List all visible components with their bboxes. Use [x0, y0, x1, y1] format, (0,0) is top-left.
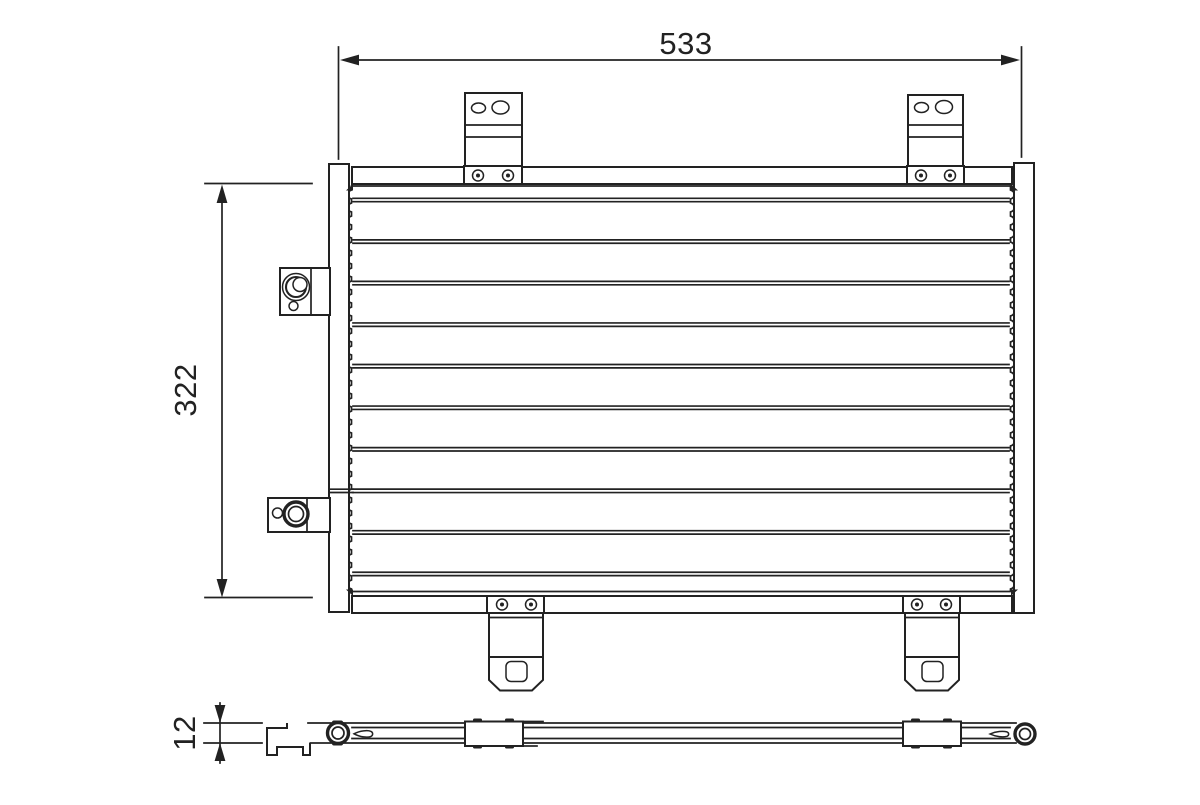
right-end-plate	[1014, 163, 1034, 613]
port-icon	[284, 502, 308, 526]
arrow-right-icon	[1001, 55, 1020, 66]
bracket-body	[905, 613, 959, 657]
pipe-tip-icon	[990, 731, 1009, 736]
top-right-bracket	[907, 95, 964, 184]
screw-center	[944, 603, 948, 607]
slot-hole-icon	[472, 103, 486, 113]
screw-center	[529, 603, 533, 607]
height-dimension: 322	[168, 184, 312, 598]
bolt-hole-icon	[289, 302, 298, 311]
slot-hole-icon	[936, 101, 953, 114]
slot-hole-icon	[915, 103, 929, 113]
width-dimension-label: 533	[659, 26, 712, 61]
lower-pipe-fitting	[268, 498, 330, 532]
bottom-right-bracket	[903, 596, 960, 691]
screw-center	[915, 603, 919, 607]
bracket-body	[489, 613, 543, 657]
height-dimension-label: 322	[168, 363, 203, 416]
side-right-port	[1015, 724, 1035, 744]
pipe-tip-icon	[354, 731, 373, 737]
technical-drawing-condenser: 533 322 12	[0, 0, 1200, 800]
port-ring-icon	[1015, 724, 1035, 744]
depth-dimension: 12	[167, 703, 262, 763]
top-left-bracket	[464, 93, 522, 184]
port-inner	[293, 278, 307, 292]
arrow-down-icon	[217, 579, 228, 598]
screw-center	[948, 174, 952, 178]
bolt-hole-icon	[273, 508, 283, 518]
side-mounting-plate	[267, 723, 310, 755]
arrow-up-icon	[215, 743, 226, 761]
left-end-plate	[329, 164, 349, 612]
screw-center	[919, 174, 923, 178]
screw-center	[476, 174, 480, 178]
bracket-block	[465, 722, 523, 747]
port-ring-icon	[328, 723, 349, 744]
side-left-port	[328, 721, 349, 746]
bottom-left-bracket	[487, 596, 544, 691]
front-view	[268, 93, 1034, 691]
screw-center	[506, 174, 510, 178]
screw-center	[500, 603, 504, 607]
core-tubes	[353, 198, 1009, 575]
arrow-left-icon	[340, 55, 359, 66]
square-hole-icon	[922, 662, 943, 682]
arrow-down-icon	[215, 705, 226, 723]
slot-hole-icon	[492, 101, 509, 114]
side-right-bracket	[903, 719, 961, 749]
upper-pipe-fitting	[280, 268, 330, 315]
bracket-block	[903, 722, 961, 747]
square-hole-icon	[506, 662, 527, 682]
arrow-up-icon	[217, 185, 228, 204]
side-view	[267, 719, 1035, 756]
depth-dimension-label: 12	[167, 715, 202, 750]
